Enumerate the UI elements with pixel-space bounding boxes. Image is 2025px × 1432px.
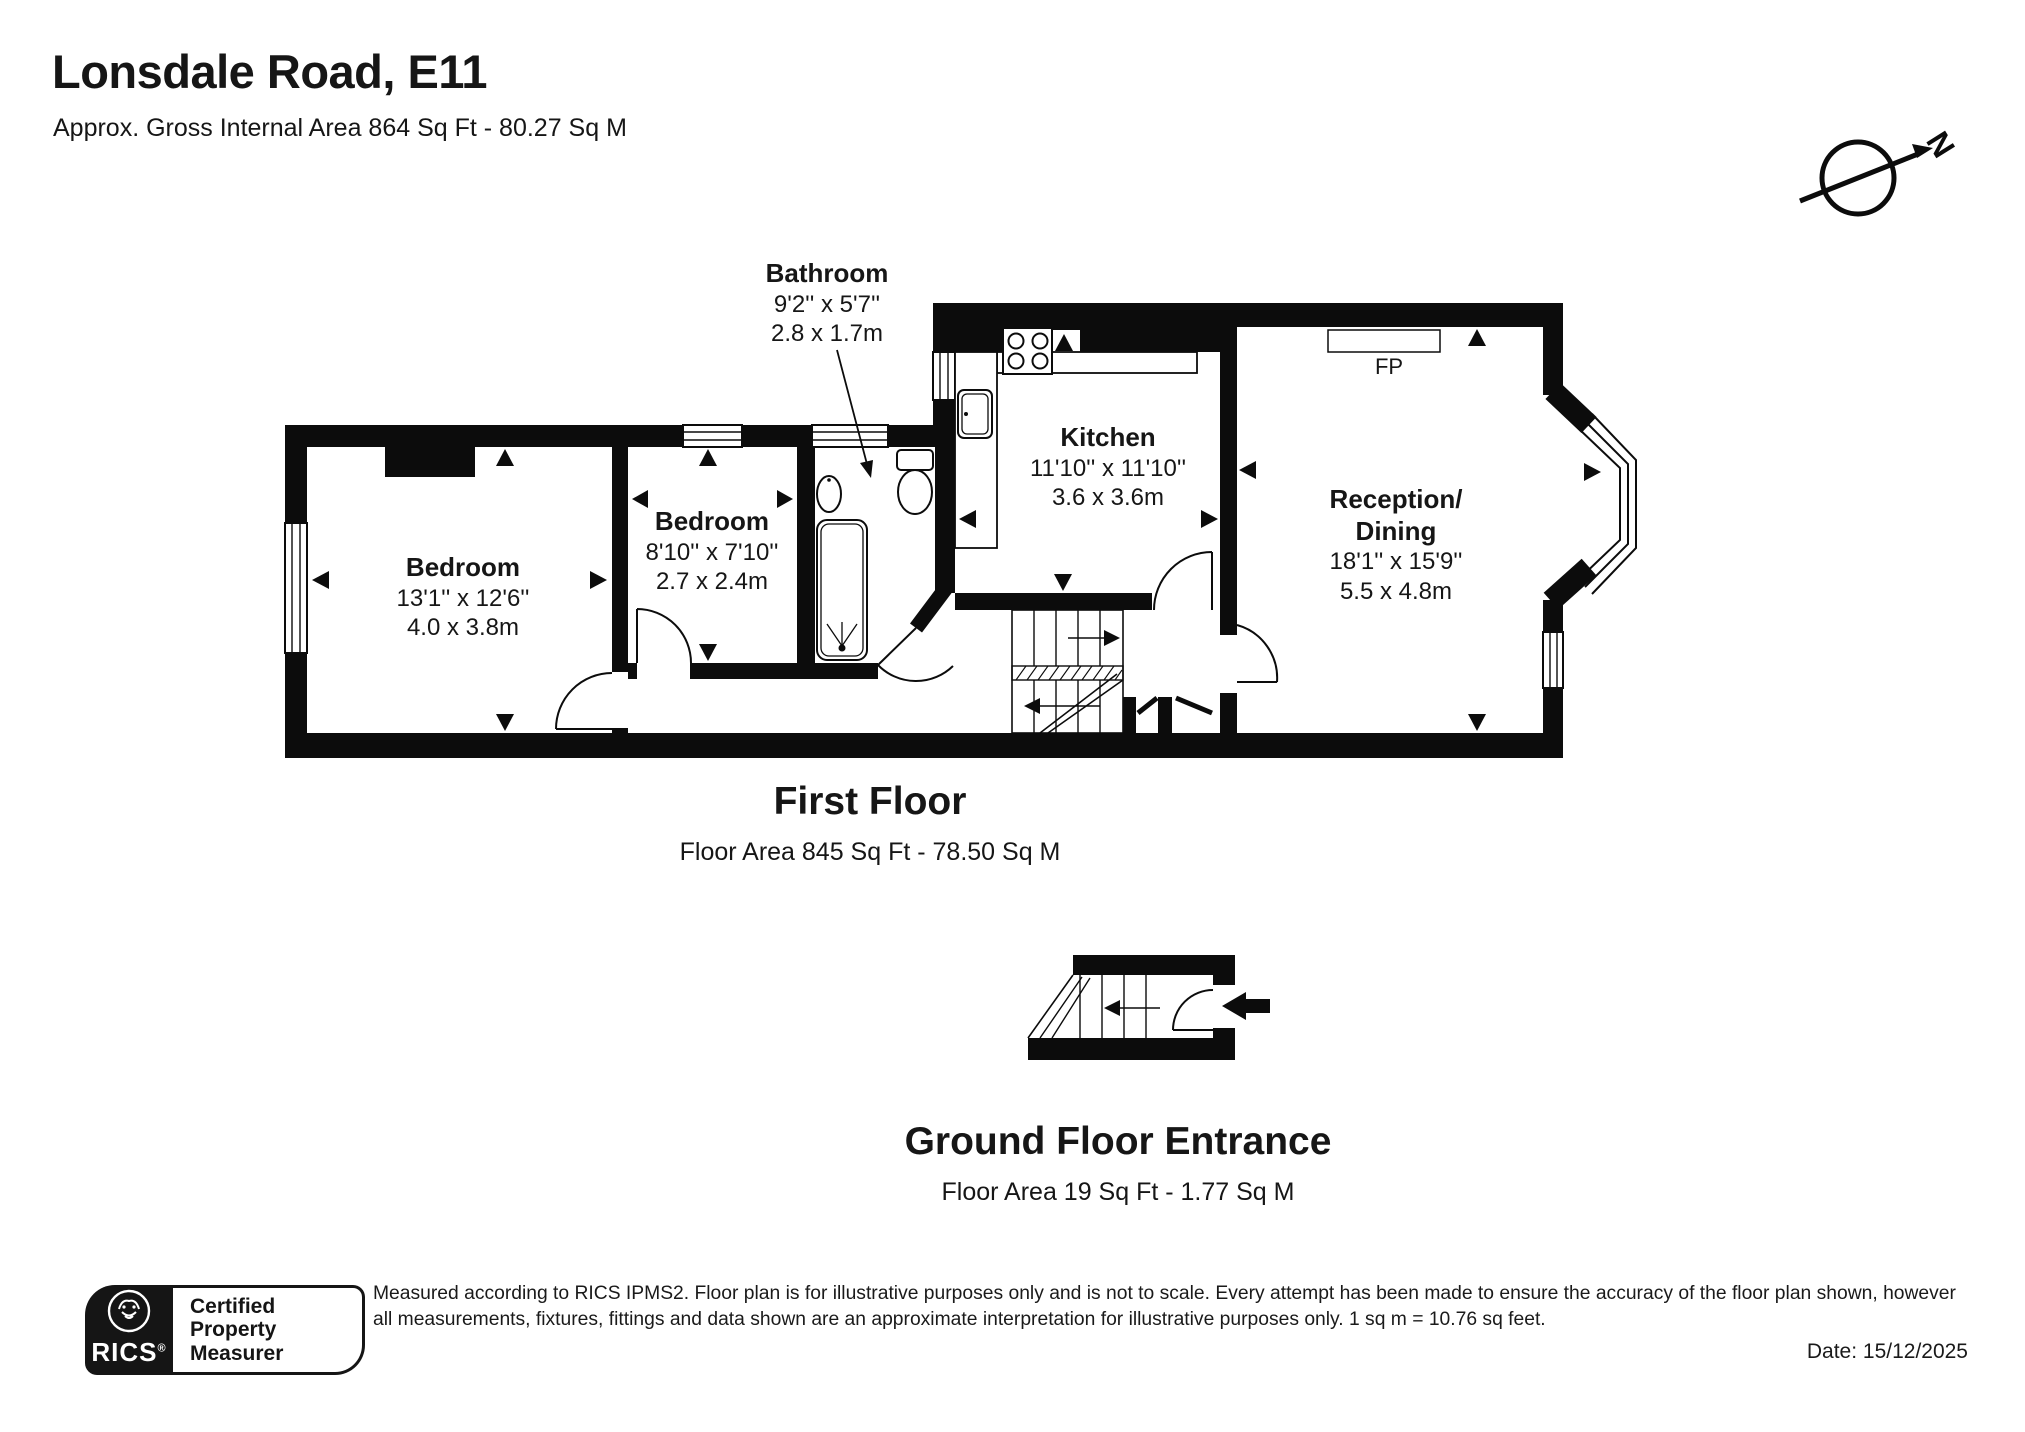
floorplan-graphics: N bbox=[0, 0, 2025, 1432]
reception-door bbox=[1237, 625, 1277, 682]
lobby-door-flaps bbox=[1138, 698, 1212, 713]
rics-cert-line3: Measurer bbox=[190, 1342, 362, 1366]
floorplan-page: N Lonsdale Road, E11 Approx. Gross Inter… bbox=[0, 0, 2025, 1432]
fireplace bbox=[1328, 330, 1440, 352]
stairs-arrow-left bbox=[1024, 698, 1040, 714]
bathroom-diagonal-wall bbox=[916, 588, 946, 628]
bathroom-metric: 2.8 x 1.7m bbox=[766, 319, 889, 348]
bathroom-imperial: 9'2'' x 5'7'' bbox=[766, 290, 889, 319]
ground-entrance-door bbox=[1173, 990, 1213, 1030]
rics-lion-icon bbox=[101, 1285, 157, 1337]
kitchen-door bbox=[1154, 552, 1212, 610]
bath bbox=[817, 520, 867, 660]
kitchen-metric: 3.6 x 3.6m bbox=[1030, 483, 1186, 512]
ground-floor-heading: Ground Floor Entrance bbox=[905, 1118, 1332, 1166]
reception-name-line2: Dining bbox=[1330, 516, 1463, 548]
bathroom-label: Bathroom 9'2'' x 5'7'' 2.8 x 1.7m bbox=[766, 258, 889, 348]
disclaimer-text: Measured according to RICS IPMS2. Floor … bbox=[373, 1281, 1965, 1332]
kitchen-label: Kitchen 11'10'' x 11'10'' 3.6 x 3.6m bbox=[1030, 422, 1186, 512]
stairs bbox=[1012, 610, 1123, 733]
bathroom-name: Bathroom bbox=[766, 258, 889, 290]
rics-brand: RICS® bbox=[91, 1339, 166, 1365]
bedroom-middle-imperial: 8'10'' x 7'10'' bbox=[646, 538, 779, 567]
toilet bbox=[897, 450, 933, 514]
rics-badge: RICS® Certified Property Measurer bbox=[85, 1285, 365, 1375]
rics-logo-box: RICS® bbox=[85, 1285, 173, 1375]
bathroom-leader-arrowhead bbox=[860, 460, 873, 478]
rics-cert-line2: Property bbox=[190, 1318, 362, 1342]
hob bbox=[1003, 328, 1052, 374]
bathroom-leader-line bbox=[837, 350, 868, 468]
ground-floor-caption: Ground Floor Entrance Floor Area 19 Sq F… bbox=[905, 1118, 1332, 1207]
bedroom-middle-name: Bedroom bbox=[646, 506, 779, 538]
stairs-arrow-right bbox=[1104, 630, 1120, 646]
bathroom-door bbox=[878, 628, 953, 681]
entrance-arrow bbox=[1222, 992, 1270, 1020]
compass-needle bbox=[1800, 154, 1918, 201]
rics-cert-line1: Certified bbox=[190, 1295, 362, 1319]
page-title: Lonsdale Road, E11 bbox=[52, 44, 487, 99]
compass-north-label: N bbox=[1919, 125, 1962, 164]
kitchen-imperial: 11'10'' x 11'10'' bbox=[1030, 454, 1186, 483]
bedroom-middle-door bbox=[637, 609, 691, 663]
reception-metric: 5.5 x 4.8m bbox=[1330, 577, 1463, 606]
first-floor-heading: First Floor bbox=[680, 778, 1061, 826]
bedroom-middle-metric: 2.7 x 2.4m bbox=[646, 567, 779, 596]
ground-floor-area: Floor Area 19 Sq Ft - 1.77 Sq M bbox=[905, 1177, 1332, 1208]
rics-certification-box: Certified Property Measurer bbox=[173, 1285, 365, 1375]
bedroom-left-name: Bedroom bbox=[397, 552, 530, 584]
date-label: Date: 15/12/2025 bbox=[1807, 1340, 1968, 1364]
sink bbox=[958, 390, 992, 438]
bedroom-left-door bbox=[556, 673, 612, 729]
bay-corner-upper bbox=[1553, 391, 1589, 425]
basin bbox=[817, 476, 841, 512]
compass: N bbox=[1800, 125, 1962, 214]
page-subtitle: Approx. Gross Internal Area 864 Sq Ft - … bbox=[53, 114, 627, 143]
fireplace-label: FP bbox=[1375, 354, 1403, 380]
reception-name-line1: Reception/ bbox=[1330, 484, 1463, 516]
ground-stairs-arrow bbox=[1104, 1000, 1120, 1016]
reception-imperial: 18'1'' x 15'9'' bbox=[1330, 547, 1463, 576]
reception-label: Reception/ Dining 18'1'' x 15'9'' 5.5 x … bbox=[1330, 484, 1463, 606]
kitchen-name: Kitchen bbox=[1030, 422, 1186, 454]
bedroom-left-label: Bedroom 13'1'' x 12'6'' 4.0 x 3.8m bbox=[397, 552, 530, 642]
bedroom-left-imperial: 13'1'' x 12'6'' bbox=[397, 584, 530, 613]
ground-stairs bbox=[1028, 975, 1213, 1038]
bedroom-left-metric: 4.0 x 3.8m bbox=[397, 613, 530, 642]
first-floor-caption: First Floor Floor Area 845 Sq Ft - 78.50… bbox=[680, 778, 1061, 867]
bay-corner-lower bbox=[1551, 567, 1589, 601]
first-floor-area: Floor Area 845 Sq Ft - 78.50 Sq M bbox=[680, 837, 1061, 868]
ground-floor-plan bbox=[1028, 955, 1270, 1060]
bedroom-middle-label: Bedroom 8'10'' x 7'10'' 2.7 x 2.4m bbox=[646, 506, 779, 596]
rics-registered-mark: ® bbox=[158, 1342, 167, 1354]
